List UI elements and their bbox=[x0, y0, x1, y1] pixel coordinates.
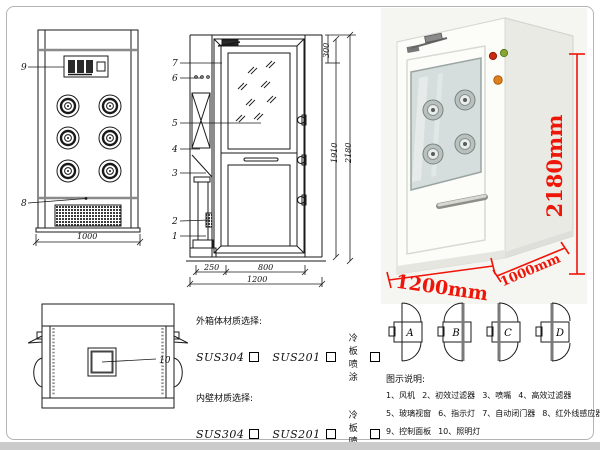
legend-item: 6、指示灯 bbox=[438, 409, 475, 418]
dim-2180: 2180 bbox=[344, 143, 353, 164]
door-glass-window bbox=[228, 53, 290, 149]
callout-5-glass: 5 bbox=[172, 119, 178, 129]
legend-item: 7、自动闭门器 bbox=[482, 409, 535, 418]
callout-2-prefilter: 2 bbox=[171, 217, 178, 227]
dim-300: 300 bbox=[322, 43, 331, 58]
legend-line: 9、控制面板10、照明灯 bbox=[386, 426, 592, 437]
material-section-title: 外箱体材质选择: bbox=[196, 314, 380, 327]
legend-item: 5、玻璃视窗 bbox=[386, 409, 431, 418]
callout-7-door-closer: 7 bbox=[172, 59, 178, 69]
front-view-drawing: 9 8 1000 bbox=[20, 26, 144, 250]
callout-8-sensor: 8 bbox=[21, 199, 27, 209]
side-view-drawing: 7 6 5 4 3 2 1 300 1910 2180 250 800 bbox=[166, 25, 366, 289]
callout-9-control-panel: 9 bbox=[21, 63, 27, 73]
dim-250: 250 bbox=[203, 263, 219, 272]
callout-4-hepa: 4 bbox=[171, 145, 178, 155]
fan-column bbox=[198, 182, 208, 240]
door-option-d[interactable]: D bbox=[533, 301, 577, 363]
material-option-label: SUS201 bbox=[272, 351, 320, 364]
material-checkbox[interactable] bbox=[326, 352, 336, 362]
material-checkbox[interactable] bbox=[370, 429, 380, 439]
legend-item: 4、高效过滤器 bbox=[518, 391, 571, 400]
material-checkbox[interactable] bbox=[249, 352, 259, 362]
door-option-a[interactable]: A bbox=[386, 301, 430, 363]
door-option-label: B bbox=[451, 328, 459, 339]
control-panel-gauges bbox=[68, 60, 93, 73]
air-shower-spec-sheet: 9 8 1000 bbox=[0, 0, 600, 450]
material-section-title: 内壁材质选择: bbox=[196, 391, 380, 404]
photo-height-dim: 2180mm bbox=[542, 115, 567, 218]
front-width-dim: 1000 bbox=[77, 232, 97, 241]
dim-1910: 1910 bbox=[330, 143, 339, 163]
material-checkbox[interactable] bbox=[326, 429, 336, 439]
callout-6-indicator: 6 bbox=[172, 74, 178, 84]
legend-item: 9、控制面板 bbox=[386, 427, 431, 436]
door-option-label: C bbox=[504, 328, 512, 339]
door-handle bbox=[244, 158, 278, 161]
top-view-drawing: 10 bbox=[28, 298, 188, 418]
callout-1-fan: 1 bbox=[172, 232, 178, 242]
door-option-c[interactable]: C bbox=[484, 301, 528, 363]
material-option-label: SUS304 bbox=[196, 351, 244, 364]
right-handle bbox=[174, 358, 182, 387]
bottom-border-band bbox=[0, 442, 600, 450]
dim-800: 800 bbox=[258, 263, 273, 272]
legend-line: 5、玻璃视窗6、指示灯7、自动闭门器8、红外线感应器 bbox=[386, 408, 592, 419]
material-checkbox[interactable] bbox=[249, 429, 259, 439]
legend-line: 1、风机2、初效过滤器3、喷嘴4、高效过滤器 bbox=[386, 390, 592, 401]
material-option-label: SUS201 bbox=[272, 428, 320, 441]
material-checkbox[interactable] bbox=[370, 352, 380, 362]
legend-item: 10、照明灯 bbox=[438, 427, 480, 436]
material-option-label: SUS304 bbox=[196, 428, 244, 441]
material-selection: 外箱体材质选择: SUS304 SUS201 冷板喷涂 内壁材质选择: SUS3… bbox=[196, 312, 380, 450]
dim-1200: 1200 bbox=[247, 275, 267, 284]
callout-3-nozzle: 3 bbox=[172, 169, 178, 179]
legend-title: 图示说明: bbox=[386, 372, 592, 385]
door-option-label: D bbox=[555, 328, 564, 339]
legend-item: 3、喷嘴 bbox=[482, 391, 511, 400]
product-photo: 2180mm 1200mm 1000mm bbox=[381, 8, 587, 304]
air-return-grille bbox=[55, 205, 121, 226]
legend-item: 8、红外线感应器 bbox=[542, 409, 600, 418]
left-handle bbox=[34, 358, 42, 387]
legend-item: 2、初效过滤器 bbox=[422, 391, 475, 400]
material-option-label: 冷板喷涂 bbox=[349, 331, 365, 383]
door-option-b[interactable]: B bbox=[435, 301, 479, 363]
callout-10-light: 10 bbox=[159, 356, 171, 366]
door-option-label: A bbox=[405, 328, 413, 339]
legend: 图示说明: 1、风机2、初效过滤器3、喷嘴4、高效过滤器 5、玻璃视窗6、指示灯… bbox=[386, 372, 592, 444]
door-swing-options: A B C D bbox=[386, 301, 582, 365]
legend-item: 1、风机 bbox=[386, 391, 415, 400]
door-hinge-flaps bbox=[28, 332, 188, 343]
